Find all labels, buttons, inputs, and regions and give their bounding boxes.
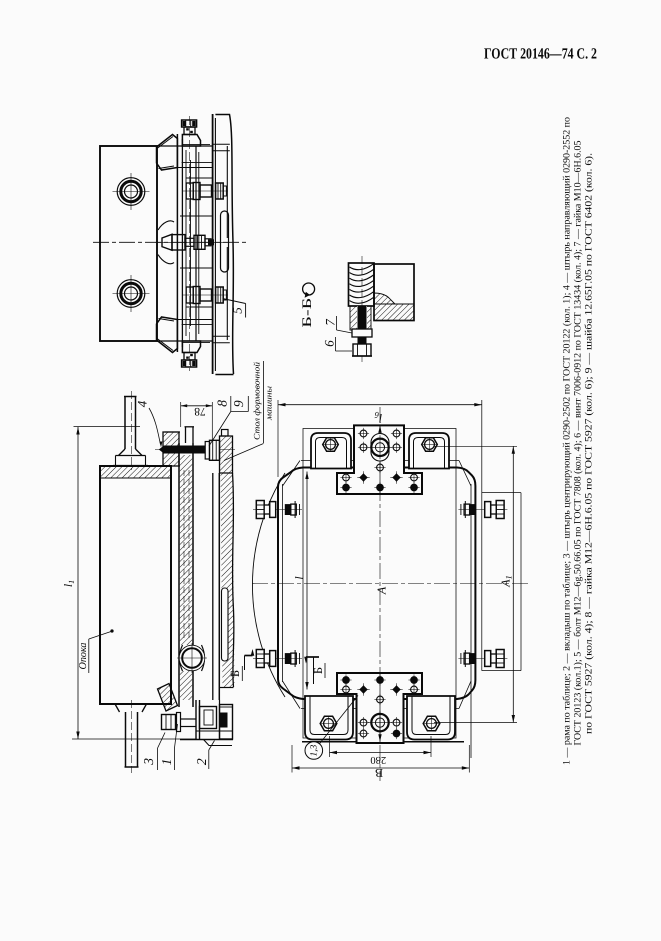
svg-text:1,3: 1,3 [309, 744, 319, 756]
svg-text:1: 1 [159, 759, 174, 766]
svg-text:Б-Б: Б-Б [299, 298, 314, 328]
svg-text:3: 3 [141, 758, 156, 766]
svg-text:1 — рама по таблице; 2 — вклад: 1 — рама по таблице; 2 — вкладыш по табл… [561, 117, 572, 765]
svg-text:4: 4 [134, 400, 149, 407]
svg-text:ГОСТ 20146—74 С. 2: ГОСТ 20146—74 С. 2 [484, 46, 597, 63]
svg-text:по ГОСТ 5927 (кол. 4); 8 — гай: по ГОСТ 5927 (кол. 4); 8 — гайка М12—6Н.… [583, 153, 594, 734]
svg-text:Б: Б [311, 667, 325, 674]
svg-text:ГОСТ 20123 (кол.1); 5 — болт М: ГОСТ 20123 (кол.1); 5 — болт М12—6g.50.6… [572, 140, 583, 745]
svg-text:5: 5 [230, 307, 245, 314]
svg-text:9: 9 [231, 400, 246, 407]
svg-text:78: 78 [194, 405, 206, 417]
svg-text:машины: машины [264, 386, 274, 421]
svg-text:А: А [375, 586, 389, 595]
svg-text:7: 7 [323, 319, 338, 326]
svg-text:Опока: Опока [78, 643, 89, 670]
svg-text:280: 280 [370, 754, 386, 765]
svg-text:2: 2 [194, 758, 209, 765]
svg-text:В: В [375, 766, 383, 780]
svg-text:6: 6 [322, 340, 337, 347]
svg-text:8: 8 [215, 400, 230, 407]
svg-text:l: l [294, 576, 306, 579]
svg-text:Стол формовочной: Стол формовочной [252, 361, 262, 440]
svg-text:Б: Б [228, 670, 242, 677]
